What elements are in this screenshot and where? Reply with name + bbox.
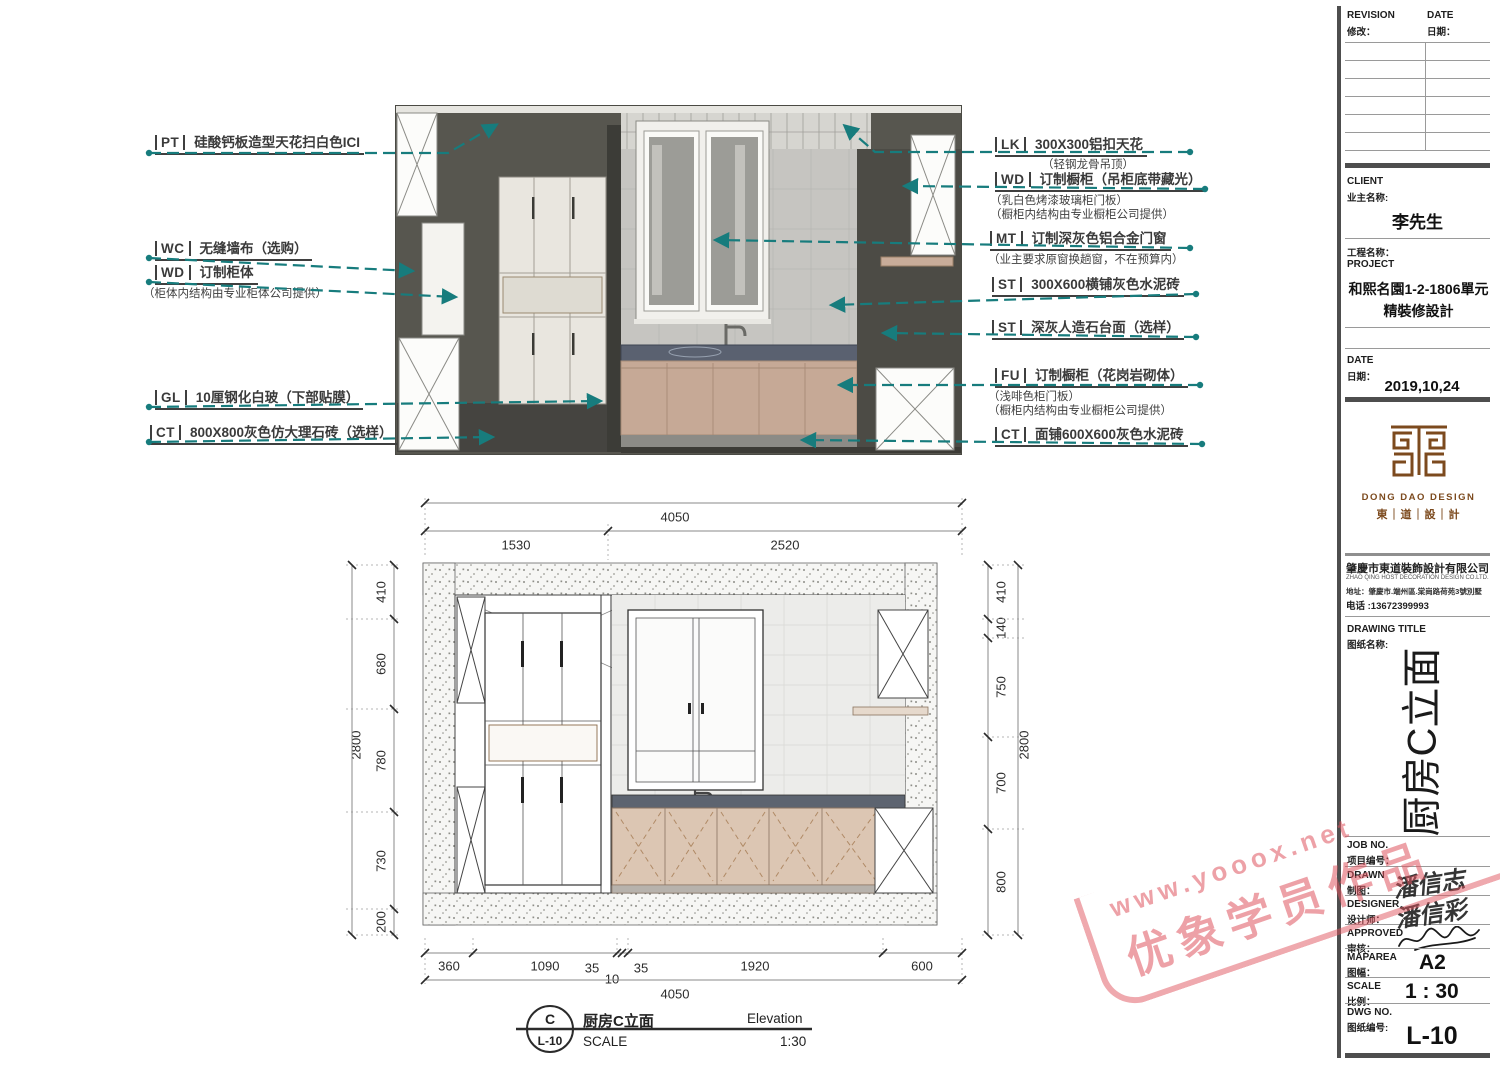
dim-right-seg: 750: [994, 676, 1009, 698]
annotation-code: CT: [995, 427, 1026, 442]
revision-date-label-en: DATE: [1427, 10, 1453, 21]
date-label-en: DATE: [1347, 355, 1373, 366]
drawing-title-vertical: 厨房C立面: [1390, 648, 1448, 837]
dim-left-seg: 730: [374, 850, 389, 872]
dim-bottom-seg: 1920: [741, 959, 770, 974]
annotation-note: （橱柜内结构由专业橱柜公司提供）: [990, 206, 1174, 222]
annotation-wd-right: WD订制橱柜（吊柜底带藏光）: [995, 168, 1206, 192]
annotation-code: PT: [155, 135, 185, 150]
render-right-upper-cabinet-x: [911, 135, 955, 255]
annotation-text: 深灰人造石台面（选样）: [1031, 320, 1180, 335]
dongdao-logo: [1381, 424, 1457, 478]
render-left-tall-cabinet-x: [397, 113, 437, 216]
annotation-text: 硅酸钙板造型天花扫白色ICI: [194, 135, 360, 150]
revision-row-line: [1345, 150, 1490, 151]
annotation-gl: GL10厘钢化白玻（下部贴膜）: [155, 386, 363, 410]
logo-text-en: DONG DAO DESIGN: [1337, 492, 1500, 503]
annotation-text: 10厘钢化白玻（下部贴膜）: [196, 390, 360, 405]
scale-label-en: SCALE: [1347, 981, 1381, 992]
title-block-border: [1337, 6, 1341, 1058]
dim-bottom-seg: 600: [911, 959, 933, 974]
annotation-pt: PT硅酸钙板造型天花扫白色ICI: [155, 131, 364, 155]
revision-row-line: [1345, 96, 1490, 97]
company-phone: 电话 :13672399993: [1346, 598, 1429, 612]
scale-label-cn: 比例：: [1347, 994, 1376, 1008]
dim-bottom-seg: 360: [438, 959, 460, 974]
annotation-text: 面铺600X600灰色水泥砖: [1035, 427, 1184, 442]
render-window: [634, 121, 771, 324]
annotation-text: 300X600横铺灰色水泥砖: [1031, 277, 1180, 292]
dim-right-seg: 700: [994, 772, 1009, 794]
divider-line: [1345, 1003, 1490, 1004]
drawing-right-upper-cabinet-x: [878, 610, 928, 698]
annotation-st2: ST深灰人造石台面（选样）: [992, 316, 1184, 340]
dwg-no-label-en: DWG NO.: [1347, 1007, 1392, 1018]
divider-line: [1345, 348, 1490, 349]
divider-line: [1345, 948, 1490, 949]
annotation-code: ST: [992, 277, 1022, 292]
project-label-cn: 工程名称：: [1347, 245, 1395, 259]
maparea-value: A2: [1419, 951, 1446, 975]
designer-label-en: DESIGNER: [1347, 899, 1399, 910]
render-partition-wall: [607, 125, 621, 452]
drawing-title-label-en: DRAWING TITLE: [1347, 624, 1426, 635]
annotation-note: （橱柜内结构由专业橱柜公司提供）: [988, 402, 1172, 418]
client-label-en: CLIENT: [1347, 176, 1383, 187]
divider-line: [1345, 836, 1490, 837]
maparea-label-en: MAPAREA: [1347, 952, 1397, 963]
dim-bottom-seg: 1090: [531, 959, 560, 974]
annotation-code: MT: [990, 231, 1023, 246]
annotation-code: CT: [150, 425, 181, 440]
view-title-cn: 厨房C立面: [583, 1010, 654, 1031]
dim-top-seg: 1530: [502, 538, 531, 553]
revision-label-en: REVISION: [1347, 10, 1395, 21]
dim-top-seg: 2520: [771, 538, 800, 553]
section-bar: [1345, 397, 1490, 402]
annotation-lk: LK300X300铝扣天花: [995, 133, 1147, 157]
divider-line: [1345, 327, 1490, 328]
company-address: 地址：肇慶市.端州區.棠崗路荷苑3號別墅: [1346, 586, 1482, 597]
annotation-st1: ST300X600横铺灰色水泥砖: [992, 273, 1184, 297]
annotation-code: LK: [995, 137, 1026, 152]
title-block: REVISION 修改： DATE 日期： CLIENT 业主名称: 李先生 工…: [1337, 0, 1500, 1074]
revision-row-line: [1345, 132, 1490, 133]
section-bar: [1345, 1053, 1490, 1058]
drawing-title-label-cn: 图纸名称:: [1347, 637, 1388, 651]
divider-line: [1345, 238, 1490, 239]
divider-line: [1345, 616, 1490, 617]
project-name-line1: 和熙名園1-2-1806單元: [1339, 279, 1498, 299]
annotation-text: 订制柜体: [200, 265, 254, 280]
project-label-en: PROJECT: [1347, 259, 1394, 270]
render-pantry-cabinet: [499, 177, 606, 404]
kitchen-elevation-drawing: [395, 555, 965, 933]
dim-left-seg: 410: [374, 581, 389, 603]
dim-right-seg: 140: [994, 617, 1009, 639]
render-base-cabinets: [621, 361, 857, 447]
section-bar: [1345, 163, 1490, 168]
annotation-code: ST: [992, 320, 1022, 335]
annotation-wc: WC无缝墙布（选购）: [155, 237, 312, 261]
annotation-note: （业主要求原窗换趟窗，不在预算内）: [988, 251, 1184, 267]
drawing-right-shelf: [853, 707, 928, 715]
revision-table-divider: [1425, 42, 1426, 150]
date-value: 2019,10,24: [1357, 378, 1487, 395]
annotation-code: WD: [995, 172, 1031, 187]
annotation-ct-left: CT800X800灰色仿大理石砖（选样）: [150, 421, 397, 445]
dim-left-overall: 2800: [349, 731, 364, 760]
drawing-window: [628, 610, 763, 790]
dim-right-overall: 2800: [1017, 731, 1032, 760]
revision-row-line: [1345, 42, 1490, 43]
annotation-wd-left: WD订制柜体: [155, 261, 258, 285]
job-no-label-cn: 项目编号：: [1347, 853, 1395, 867]
dim-top-overall: 4050: [661, 510, 690, 525]
dim-left-seg: 200: [374, 911, 389, 933]
scale-value: 1 : 30: [1405, 980, 1459, 1004]
divider-line: [1345, 977, 1490, 978]
client-name: 李先生: [1345, 208, 1490, 233]
view-bubble-sheet: L-10: [538, 1034, 563, 1048]
revision-row-line: [1345, 114, 1490, 115]
client-label-cn: 业主名称:: [1347, 190, 1388, 204]
revision-row-line: [1345, 78, 1490, 79]
dwg-no-value: L-10: [1377, 1022, 1487, 1051]
render-left-lower-cabinet-x: [399, 338, 459, 450]
drawing-sheet: PT硅酸钙板造型天花扫白色ICI WC无缝墙布（选购） WD订制柜体 （柜体内结…: [0, 0, 1500, 1074]
render-countertop: [621, 345, 865, 361]
annotation-note: （柜体内结构由专业柜体公司提供）: [143, 285, 327, 301]
view-title-en: Elevation: [747, 1011, 803, 1026]
annotation-ct-right: CT面铺600X600灰色水泥砖: [995, 423, 1188, 447]
annotation-text: 订制橱柜（花岗岩砌体）: [1035, 368, 1184, 383]
annotation-text: 订制深灰色铝合金门窗: [1032, 231, 1167, 246]
company-name: 肇慶市東道裝飾設計有限公司: [1346, 560, 1489, 576]
dim-right-seg: 410: [994, 581, 1009, 603]
job-no-label-en: JOB NO.: [1347, 840, 1388, 851]
drawing-right-appliance-x: [875, 808, 933, 893]
company-name-en: ZHAO QING HOST DECORATION DESIGN CO.LTD.: [1346, 575, 1489, 581]
dim-right-seg: 800: [994, 871, 1009, 893]
annotation-code: WD: [155, 265, 191, 280]
logo-text-cn: 東｜道｜設｜計: [1337, 506, 1500, 522]
dim-left-seg: 780: [374, 750, 389, 772]
drawing-base-cabinets: [612, 808, 880, 893]
view-bubble-letter: C: [545, 1011, 555, 1027]
render-right-shelf: [881, 257, 953, 266]
kitchen-render-elevation: [395, 105, 962, 455]
annotation-text: 800X800灰色仿大理石砖（选样）: [190, 425, 393, 440]
revision-label-cn: 修改：: [1347, 24, 1376, 38]
annotation-mt: MT订制深灰色铝合金门窗: [990, 227, 1171, 251]
annotation-fu: FU订制橱柜（花岗岩砌体）: [995, 364, 1188, 388]
render-left-panel: [422, 223, 464, 335]
annotation-text: 300X300铝扣天花: [1035, 137, 1143, 152]
revision-date-label-cn: 日期：: [1427, 24, 1456, 38]
dim-bottom-seg: 10: [605, 972, 619, 987]
annotation-code: GL: [155, 390, 187, 405]
view-scale-value: 1:30: [780, 1034, 806, 1049]
view-scale-label: SCALE: [583, 1034, 627, 1049]
company-box-top: [1345, 553, 1490, 556]
annotation-text: 订制橱柜（吊柜底带藏光）: [1040, 172, 1202, 187]
drawn-label-en: DRAWN: [1347, 870, 1385, 881]
dim-bottom-seg: 35: [585, 961, 599, 976]
drawing-pantry-cabinet: [485, 613, 601, 885]
render-right-lower-cabinet-x: [876, 368, 954, 450]
drawing-countertop: [612, 795, 905, 808]
revision-row-line: [1345, 60, 1490, 61]
project-name-line2: 精裝修設計: [1339, 301, 1498, 321]
dim-bottom-seg: 35: [634, 961, 648, 976]
annotation-text: 无缝墙布（选购）: [200, 241, 308, 256]
dim-left-seg: 680: [374, 653, 389, 675]
drawing-title-vertical-wrap: 厨房C立面: [1337, 652, 1500, 832]
annotation-code: WC: [155, 241, 191, 256]
dim-bottom-overall: 4050: [661, 987, 690, 1002]
annotation-code: FU: [995, 368, 1026, 383]
